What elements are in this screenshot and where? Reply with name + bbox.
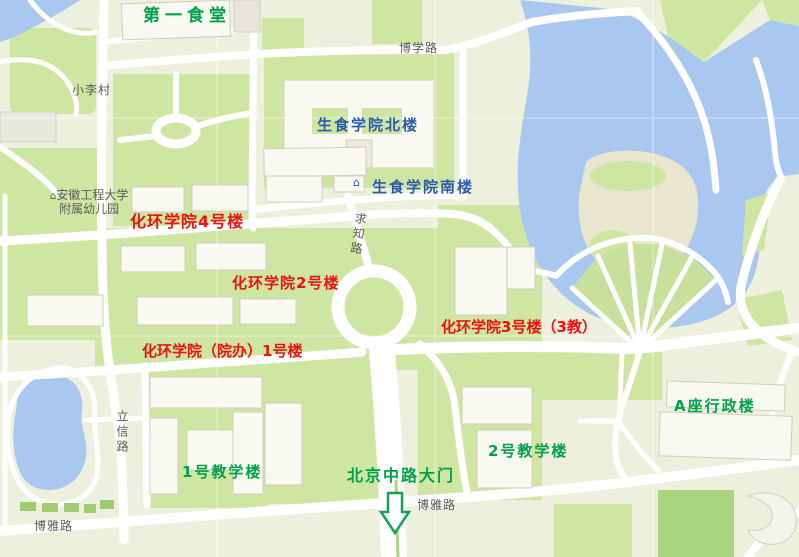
label-huahuan-1: 化环学院（院办）1号楼	[142, 344, 302, 359]
label-shengshi-south: 生食学院南楼	[372, 180, 474, 195]
campus-map: 第一食堂 博学路 小李村 生食学院北楼 ⌂ 生食学院南楼 ⌂安徽工程大学 附属幼…	[0, 0, 799, 557]
label-lixin-road: 立信路	[116, 410, 128, 455]
label-huahuan-3: 化环学院3号楼（3教）	[441, 320, 597, 335]
label-teaching-1: 1号教学楼	[182, 465, 262, 480]
label-shengshi-north: 生食学院北楼	[317, 118, 419, 133]
sports-field	[658, 490, 734, 557]
label-xiaoli-village: 小李村	[72, 84, 111, 96]
label-huahuan-4: 化环学院4号楼	[130, 214, 244, 230]
label-canteen-1: 第一食堂	[143, 8, 231, 25]
label-kindergarten: ⌂安徽工程大学 附属幼儿园	[50, 189, 128, 217]
label-boxue-road: 博学路	[399, 42, 438, 54]
label-boya-road-center: 博雅路	[417, 499, 456, 511]
label-teaching-2: 2号教学楼	[488, 444, 568, 459]
label-gate-beijing-rd: 北京中路大门	[347, 468, 455, 484]
south-building-icon: ⌂	[353, 177, 360, 188]
label-boya-road-west: 博雅路	[34, 520, 73, 532]
label-huahuan-2: 化环学院2号楼	[232, 276, 339, 291]
label-admin-a: A座行政楼	[674, 399, 756, 414]
